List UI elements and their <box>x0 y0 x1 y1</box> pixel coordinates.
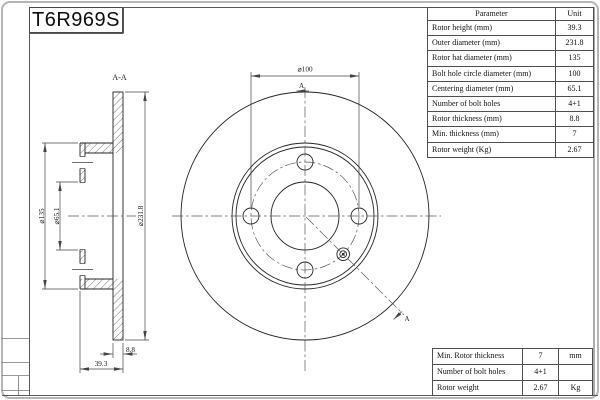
table-row: Min. Rotor thickness 7 mm <box>433 349 592 364</box>
part-number-box: T6R969S <box>29 7 123 33</box>
header-unit: Unit <box>556 8 593 20</box>
hatch-disc-top <box>113 92 123 153</box>
param-name: Rotor weight (Kg) <box>428 143 556 157</box>
dim-label-height: 39.3 <box>95 360 108 368</box>
param-name: Rotor hat diameter (mm) <box>428 51 556 65</box>
summary-unit <box>559 365 592 379</box>
param-name: Rotor height (mm) <box>428 21 556 35</box>
dim-label-bolt-circle: ⌀100 <box>297 66 313 74</box>
param-value: 8.8 <box>556 112 593 126</box>
param-name: Centering diameter (mm) <box>428 82 556 96</box>
summary-value: 2.67 <box>523 381 559 395</box>
table-row: Outer diameter (mm) 231.8 <box>428 35 593 50</box>
summary-unit: mm <box>559 349 592 364</box>
param-value: 231.8 <box>556 36 593 50</box>
table-row: Rotor thickness (mm) 8.8 <box>428 111 593 126</box>
summary-unit: Kg <box>559 381 592 395</box>
table-row: Rotor hat diameter (mm) 135 <box>428 50 593 65</box>
table-header-row: Parameter Unit <box>428 8 593 20</box>
param-value: 135 <box>556 51 593 65</box>
dim-label-hat-diameter: ⌀135 <box>38 208 46 224</box>
summary-name: Number of bolt holes <box>433 365 523 379</box>
table-row: Rotor height (mm) 39.3 <box>428 20 593 35</box>
param-name: Rotor thickness (mm) <box>428 112 556 126</box>
param-value: 7 <box>556 127 593 141</box>
param-name: Number of bolt holes <box>428 97 556 111</box>
param-name: Min. thickness (mm) <box>428 127 556 141</box>
param-value: 100 <box>556 67 593 81</box>
part-number: T6R969S <box>32 9 120 31</box>
table-row: Number of bolt holes 4+1 <box>428 96 593 111</box>
table-row: Min. thickness (mm) 7 <box>428 126 593 141</box>
section-view: ⌀231.8 ⌀135 ⌀65.1 8.8 39.3 A-A <box>38 73 149 373</box>
param-name: Bolt hole circle diameter (mm) <box>428 67 556 81</box>
dim-label-outer-diameter: ⌀231.8 <box>137 205 145 226</box>
hatch-hub-bottom <box>80 250 85 263</box>
summary-name: Rotor weight <box>433 381 523 395</box>
hatch-disc-bottom <box>113 279 123 340</box>
summary-table: Min. Rotor thickness 7 mm Number of bolt… <box>432 348 593 396</box>
table-row: Rotor weight (Kg) 2.67 <box>428 142 593 157</box>
header-parameter: Parameter <box>428 8 556 20</box>
front-view: ⌀100 A A <box>172 66 441 373</box>
section-arrow-bottom-label: A <box>405 315 410 323</box>
summary-value: 7 <box>523 349 559 364</box>
param-value: 4+1 <box>556 97 593 111</box>
param-value: 65.1 <box>556 82 593 96</box>
section-arrow-top-label: A <box>299 82 304 90</box>
table-row: Bolt hole circle diameter (mm) 100 <box>428 66 593 81</box>
param-name: Outer diameter (mm) <box>428 36 556 50</box>
table-row: Number of bolt holes 4+1 <box>433 364 592 379</box>
dim-label-thickness: 8.8 <box>126 346 135 354</box>
parameter-table: Parameter Unit Rotor height (mm) 39.3 Ou… <box>427 7 594 158</box>
section-label: A-A <box>112 73 126 82</box>
dim-label-centering-diameter: ⌀65.1 <box>53 207 61 224</box>
summary-value: 4+1 <box>523 365 559 379</box>
param-value: 2.67 <box>556 143 593 157</box>
margin-marks <box>2 339 30 396</box>
summary-name: Min. Rotor thickness <box>433 349 523 364</box>
table-row: Rotor weight 2.67 Kg <box>433 380 592 395</box>
datasheet-page: ⌀231.8 ⌀135 ⌀65.1 8.8 39.3 A-A <box>0 0 600 400</box>
param-value: 39.3 <box>556 21 593 35</box>
hatch-hub-top <box>80 169 85 182</box>
table-row: Centering diameter (mm) 65.1 <box>428 81 593 96</box>
